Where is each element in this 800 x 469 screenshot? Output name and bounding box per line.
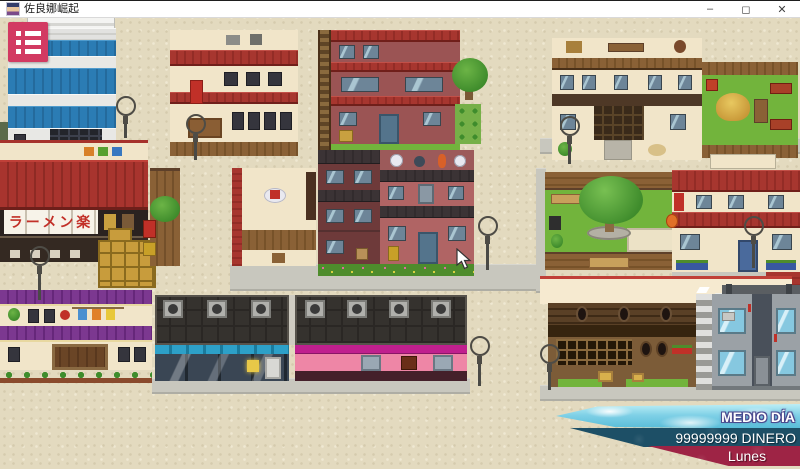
plant-row [0, 370, 152, 384]
display-case [232, 112, 244, 130]
fence [702, 62, 798, 75]
street-lamp [478, 216, 496, 270]
window [448, 186, 464, 200]
cabinet [306, 172, 316, 220]
room [242, 168, 316, 230]
street-lamp [116, 96, 134, 138]
hud-money-banner: 99999999 DINERO [570, 428, 800, 447]
app-icon [7, 3, 19, 15]
awning-magenta [295, 345, 467, 354]
lamp-arm [37, 266, 42, 274]
building-purple-house [0, 290, 152, 392]
roof-edge [232, 168, 242, 266]
window [768, 195, 784, 209]
flower-box [766, 260, 796, 270]
wall [331, 42, 460, 62]
lamp-head [186, 114, 206, 134]
street-lamp [744, 216, 762, 268]
window [363, 45, 379, 59]
display-case [248, 112, 260, 130]
hud-day-label: Lunes [728, 448, 766, 464]
window [728, 195, 744, 209]
wall [672, 192, 800, 212]
vending-machine [143, 220, 156, 238]
roof-band [331, 62, 460, 72]
lamp-head [470, 336, 490, 356]
window [614, 75, 628, 90]
hud-day-banner: Lunes [648, 446, 800, 466]
window [134, 347, 146, 362]
game-window: 佐良娜崛起 – ◻ ✕ [0, 0, 800, 469]
building-stable [548, 303, 696, 387]
glass-wall [155, 354, 289, 381]
lamp-head [540, 344, 560, 364]
bush [150, 196, 180, 222]
door [361, 355, 381, 371]
shrub-bed [455, 104, 481, 144]
window [696, 195, 712, 209]
corrugated-roof [0, 160, 148, 210]
rooftop-pot [674, 40, 686, 53]
roof-window [578, 308, 586, 320]
rooftop-item [250, 34, 262, 45]
vending-machine [143, 242, 156, 256]
street-lamp [30, 246, 48, 300]
lamp-pole [568, 144, 571, 164]
street-lamp [560, 116, 578, 164]
storefront-pink [295, 345, 467, 381]
straw-pile [648, 144, 666, 156]
roof-band [331, 30, 460, 42]
lamp-head [30, 246, 50, 266]
roof-vent [207, 300, 227, 318]
roof-band [548, 325, 696, 337]
building-dark-shops [155, 295, 467, 381]
bench [551, 194, 581, 204]
wall [318, 230, 380, 264]
window [680, 234, 700, 250]
shop-sign [401, 356, 417, 370]
cafe-table [414, 156, 425, 167]
parapet [0, 140, 148, 160]
laundry-yellow [106, 308, 115, 320]
haystack [716, 93, 750, 121]
lamp-arm [477, 356, 482, 364]
cardboard-box [356, 248, 368, 260]
roof-left [155, 295, 289, 345]
window [648, 75, 662, 90]
roof-vent [389, 300, 409, 318]
rooftop-item [226, 35, 240, 45]
roof-band [331, 96, 460, 106]
flower-box [672, 345, 692, 354]
lamp-pole [124, 124, 127, 138]
plant [551, 234, 563, 248]
wall [318, 164, 380, 190]
door [433, 355, 453, 371]
building-teahouse [232, 168, 316, 266]
flower-box [676, 260, 708, 270]
roof-band [8, 106, 116, 128]
menu-button[interactable] [8, 22, 48, 62]
rooftop-cafe [380, 150, 474, 170]
window-controls: – ◻ ✕ [692, 1, 800, 17]
crate-blue [112, 147, 122, 156]
window [678, 75, 692, 90]
window [642, 343, 650, 355]
lantern-sign [247, 360, 259, 372]
stair-column [696, 294, 712, 390]
base [295, 371, 467, 381]
table-cloth [270, 190, 280, 199]
roof-band [380, 206, 474, 218]
ac-unit [722, 312, 735, 321]
yard-grass [702, 75, 798, 145]
bench [770, 83, 792, 94]
building-modern-flat [696, 285, 800, 390]
crate-orange [84, 147, 94, 156]
window [423, 112, 441, 126]
maximize-button[interactable]: ◻ [728, 1, 764, 17]
building-brick-apartment [318, 30, 460, 156]
hud-time-banner: MEDIO DÍA [556, 404, 800, 429]
window [776, 350, 796, 376]
wall [331, 106, 460, 144]
roof-band [552, 58, 702, 70]
titlebar: 佐良娜崛起 – ◻ ✕ [0, 0, 800, 18]
lamp-head [744, 216, 764, 236]
roof-band [672, 170, 800, 192]
laundry-orange [92, 308, 101, 320]
parapet [672, 152, 800, 170]
stool [50, 250, 60, 258]
umbrella [438, 154, 446, 168]
crate [339, 130, 353, 142]
pink-wall [295, 354, 467, 371]
lattice-crates [556, 339, 632, 365]
roof-band [318, 190, 380, 202]
window [582, 75, 596, 90]
hanging-banner [674, 193, 684, 211]
window [776, 308, 796, 334]
window [28, 309, 39, 323]
window [8, 347, 20, 362]
window-title: 佐良娜崛起 [24, 1, 79, 17]
window [326, 240, 344, 254]
noren-curtain: ラーメン楽 [4, 210, 98, 234]
lamp-arm [567, 136, 572, 144]
minimize-button[interactable]: – [692, 1, 728, 17]
parapet [170, 30, 298, 50]
window [224, 72, 238, 86]
roof-vent [163, 300, 183, 318]
stool [10, 250, 20, 258]
game-canvas[interactable]: ラーメン楽 [0, 18, 800, 469]
planter-pot [549, 216, 561, 230]
window [388, 186, 404, 200]
table [754, 99, 768, 123]
stone-path [604, 140, 632, 160]
lamp-arm [485, 236, 490, 244]
window [268, 72, 282, 86]
window [341, 77, 379, 92]
lattice-front [594, 106, 644, 140]
window [326, 209, 344, 223]
left-tower [318, 150, 380, 276]
street-lamp [470, 336, 488, 386]
wall [8, 94, 116, 106]
bench [770, 119, 792, 130]
roof-band [380, 170, 474, 182]
window [118, 347, 130, 362]
display-case [264, 112, 276, 130]
parapet [552, 38, 702, 58]
tree-canopy [452, 58, 488, 92]
awning-cyan [155, 345, 289, 354]
roof-window [662, 308, 670, 320]
door [418, 232, 438, 264]
hanging-banner [190, 80, 203, 104]
rooftop-bench [608, 43, 644, 52]
window [560, 75, 574, 90]
parapet-wall [710, 154, 776, 169]
door [379, 114, 399, 144]
door [265, 357, 281, 379]
potted-plant [8, 308, 20, 321]
base [242, 250, 316, 266]
display-case [280, 112, 292, 130]
roof-vent [431, 300, 451, 318]
window [772, 234, 792, 250]
wall [318, 202, 380, 230]
lamp-head [478, 216, 498, 236]
building-pink-shops [318, 150, 474, 276]
window [339, 112, 357, 126]
window [658, 343, 666, 355]
balcony [0, 306, 152, 326]
menu-icon-row [16, 40, 41, 45]
window [246, 72, 260, 86]
crate [108, 228, 132, 242]
wall [380, 182, 474, 206]
roof-band [0, 326, 152, 342]
wall [672, 228, 800, 272]
lamp-arm [123, 116, 128, 124]
street-lamp [186, 114, 204, 160]
window [718, 350, 746, 376]
willow-canopy [579, 176, 643, 224]
window [448, 226, 466, 241]
roof-band [170, 50, 298, 66]
lamp-arm [547, 364, 552, 372]
vending-machine [388, 246, 399, 261]
window [405, 77, 443, 92]
cafe-table [454, 155, 466, 167]
list-menu-icon [16, 31, 41, 54]
roof-band [318, 150, 380, 164]
lamp-pole [194, 142, 197, 160]
entrance-door [754, 356, 770, 386]
garden [545, 172, 677, 270]
roof-vent [251, 300, 271, 318]
lamp-pole [548, 372, 551, 390]
yard-crate [706, 79, 718, 91]
base [712, 386, 800, 390]
roof-vent [347, 300, 367, 318]
storefront-glass [155, 345, 289, 381]
hay-bale [632, 373, 644, 382]
roof-vent [305, 300, 325, 318]
bench [589, 257, 629, 268]
lamp-pole [38, 274, 41, 300]
wall [552, 70, 702, 94]
menu-icon-row [16, 31, 41, 36]
lamp-pole [486, 244, 489, 270]
roof-window [620, 308, 628, 320]
facade [712, 294, 800, 390]
mouse-cursor [456, 248, 473, 271]
orange-lantern [666, 214, 678, 228]
roof [548, 303, 696, 325]
window [388, 226, 406, 241]
lamp-arm [193, 134, 198, 142]
lamp-head [116, 96, 136, 116]
window [354, 209, 372, 223]
red-accent [774, 334, 777, 342]
laundry-pole [72, 307, 124, 309]
roof-band [0, 290, 152, 306]
grass-patch [558, 379, 602, 387]
double-door [52, 344, 108, 370]
wall [548, 337, 696, 367]
crate-green [98, 147, 108, 156]
lamp-arm [751, 236, 756, 244]
roof-right [295, 295, 467, 345]
awning [672, 212, 800, 228]
close-button[interactable]: ✕ [764, 1, 800, 17]
laundry-blue [78, 308, 87, 320]
tree [452, 58, 488, 104]
red-accent [748, 304, 751, 312]
red-flowers [60, 310, 70, 320]
wall [0, 342, 152, 370]
hay-bale [598, 371, 613, 382]
window [326, 170, 344, 184]
hud-money-label: 99999999 DINERO [675, 430, 796, 446]
wall [331, 72, 460, 96]
cafe-table [390, 154, 403, 167]
lamp-pole [752, 244, 755, 268]
box [272, 253, 285, 263]
deck [242, 230, 316, 250]
roof-pipe [722, 285, 800, 294]
roof-gap [289, 295, 295, 345]
deck [545, 252, 677, 270]
window [670, 114, 686, 130]
lamp-pole [478, 364, 481, 386]
sand-patch [627, 228, 675, 252]
window [354, 170, 372, 184]
flower-bed [318, 264, 380, 276]
fenced-yard [702, 62, 798, 158]
garden-grass [545, 190, 677, 252]
window [44, 309, 55, 323]
elevator-door [418, 184, 434, 204]
roof-band [552, 94, 702, 106]
menu-icon-row [16, 49, 41, 54]
roof-band [8, 68, 116, 94]
base [548, 367, 696, 387]
hud-time-label: MEDIO DÍA [721, 409, 795, 425]
stool [70, 250, 80, 258]
street-lamp [540, 344, 558, 390]
ladder [318, 30, 331, 156]
window [339, 45, 355, 59]
rooftop-item [566, 41, 582, 53]
lamp-head [560, 116, 580, 136]
